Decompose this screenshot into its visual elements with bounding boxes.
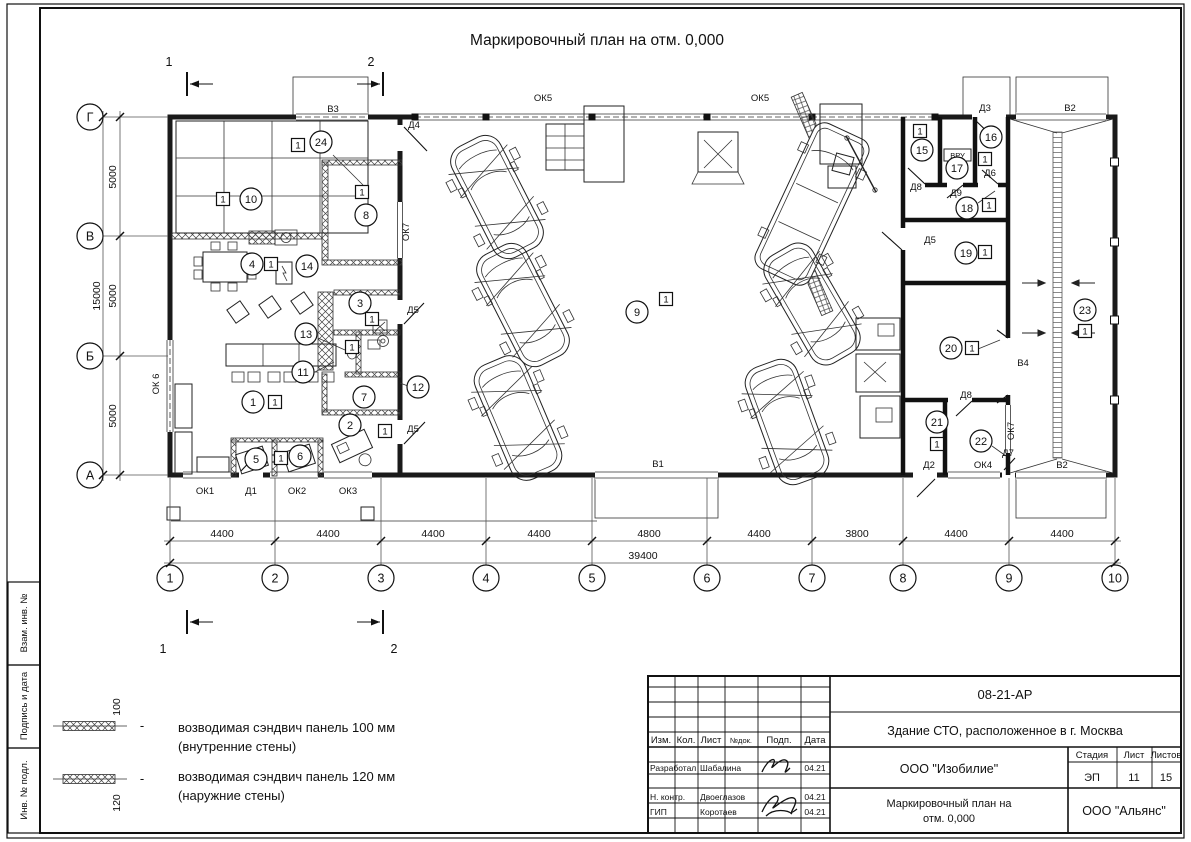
room-number: 7 [361, 392, 367, 404]
legend-dim-120: 120 [111, 794, 123, 812]
gate-v2-top [1016, 113, 1106, 122]
opening-label: ОК2 [288, 486, 306, 497]
unit-mark: 1 [917, 127, 922, 138]
opening-label: В4 [1017, 358, 1029, 369]
dim-value: 3800 [845, 528, 869, 540]
dim-value: 5000 [107, 404, 119, 428]
axis-label: Б [86, 350, 94, 364]
generated-annotations: 12345678910ГВБА4400440044004400480044003… [77, 55, 1128, 656]
plan-canvas: Взам. инв. № Подпись и дата Инв. № подл.… [0, 0, 1191, 842]
unit-mark: 1 [663, 295, 668, 306]
opening-label: Д7 [1002, 448, 1014, 459]
room-number: 24 [315, 137, 327, 149]
name-1: Двоеглазов [700, 792, 746, 802]
unit-mark: 1 [268, 260, 273, 271]
drive-bay [1010, 119, 1113, 473]
opening-label: Д8 [960, 390, 972, 401]
dim-value: 5000 [107, 284, 119, 308]
gate-v1 [595, 471, 718, 480]
company: ООО "Изобилие" [900, 762, 998, 776]
room-number: 13 [300, 329, 312, 341]
axis-label: 5 [589, 572, 596, 586]
title-block: Изм. Кол. Лист №док. Подп. Дата Разработ… [648, 676, 1181, 833]
room-number: 8 [363, 210, 369, 222]
opening-label: Д5 [924, 235, 936, 246]
opening-label: ОК5 [751, 93, 769, 104]
axis-label: 8 [900, 572, 907, 586]
col-list: Лист [701, 735, 722, 746]
drawing-title-line2: отм. 0,000 [923, 813, 975, 825]
unit-mark: 1 [982, 248, 987, 259]
opening-label: ОК 6 [151, 374, 162, 395]
unit-mark: 1 [272, 398, 277, 409]
cars [434, 89, 911, 494]
opening-label: ОК7 [401, 223, 412, 241]
legend-text-100-line2: (внутренние стены) [178, 739, 296, 754]
window-ok3 [324, 471, 372, 480]
opening-label: Д8 [910, 182, 922, 193]
car-2 [460, 232, 586, 378]
axis-label: А [86, 469, 95, 483]
legend-dash-0: - [140, 718, 144, 733]
window-ok6 [166, 340, 175, 432]
window-ok5-band [412, 113, 939, 122]
car-6 [729, 350, 845, 493]
unit-mark: 1 [220, 195, 225, 206]
legend-dash-1: - [140, 771, 144, 786]
room-number: 1 [250, 397, 256, 409]
dim-value: 4400 [527, 528, 551, 540]
room-number: 20 [945, 343, 957, 355]
room-number: 16 [985, 132, 997, 144]
dim-value: 4400 [1050, 528, 1074, 540]
legend-text-120-line2: (наружние стены) [178, 788, 285, 803]
room-number: 21 [931, 417, 943, 429]
dim-value: 4400 [944, 528, 968, 540]
legend-text-120-line1: возводимая сэндвич панель 120 мм [178, 769, 395, 784]
dim-total-left: 15000 [91, 281, 103, 310]
opening-label: Д5 [407, 424, 419, 435]
room-number: 10 [245, 194, 257, 206]
axis-label: 7 [809, 572, 816, 586]
opening-label: Д3 [979, 103, 991, 114]
opening-label: ОК5 [534, 93, 552, 104]
col-kol: Кол. [677, 735, 696, 746]
axis-label: Г [87, 111, 94, 125]
car-1 [434, 124, 560, 270]
section-mark: 2 [368, 55, 375, 69]
axis-label: 6 [704, 572, 711, 586]
opening-label: В3 [327, 104, 339, 115]
car-3 [458, 346, 578, 491]
opening-label: В2 [1064, 103, 1076, 114]
sheet-label: Лист [1124, 750, 1145, 761]
stage-label: Стадия [1076, 750, 1108, 761]
doc-code: 08-21-АР [978, 687, 1033, 702]
room-number: 23 [1079, 305, 1091, 317]
unit-mark: 1 [278, 454, 283, 465]
unit-mark: 1 [986, 201, 991, 212]
room-number: 11 [297, 367, 308, 379]
room-number: 14 [301, 261, 313, 273]
hall-dividing-wall [396, 117, 428, 475]
room-number: 2 [347, 420, 353, 432]
drawing-title-line1: Маркировочный план на [886, 798, 1012, 810]
opening-label: Д6 [984, 168, 996, 179]
gate-v2-bottom [1016, 471, 1106, 480]
dim-value: 4800 [637, 528, 661, 540]
dim-value: 4400 [210, 528, 234, 540]
axis-label: В [86, 230, 94, 244]
opening-label: ОК3 [339, 486, 357, 497]
name-0: Шабалина [700, 763, 741, 773]
room-number: 19 [960, 248, 972, 260]
door-d2 [913, 471, 937, 498]
opening-label: В2 [1056, 460, 1068, 471]
col-ndok: №док. [730, 736, 752, 745]
unit-mark: 1 [934, 440, 939, 451]
opening-label: Д9 [950, 188, 962, 199]
section-mark: 1 [160, 642, 167, 656]
date-2: 04.21 [804, 807, 826, 817]
unit-mark: 1 [982, 155, 987, 166]
room-number: 17 [951, 163, 963, 175]
name-2: Коротаев [700, 807, 737, 817]
org: ООО "Альянс" [1082, 804, 1166, 818]
left-block-partitions [172, 155, 1006, 476]
date-1: 04.21 [804, 792, 826, 802]
axis-label: 2 [272, 572, 279, 586]
opening-label: В1 [652, 459, 664, 470]
legend-dim-100: 100 [111, 698, 123, 716]
sheets-label: Листов [1151, 750, 1182, 761]
dim-value: 4400 [316, 528, 340, 540]
section-mark: 1 [166, 55, 173, 69]
room-number: 22 [975, 436, 987, 448]
room-number: 12 [412, 382, 424, 394]
axis-label: 3 [378, 572, 385, 586]
axis-label: 9 [1006, 572, 1013, 586]
col-izm: Изм. [651, 735, 671, 746]
room-number: 4 [249, 259, 255, 271]
opening-label: Д2 [923, 460, 935, 471]
role-0: Разработал [650, 763, 696, 773]
axis-label: 4 [483, 572, 490, 586]
room-number: 5 [253, 454, 259, 466]
section-mark: 2 [391, 642, 398, 656]
sheet-value: 11 [1128, 772, 1139, 784]
unit-mark: 1 [349, 343, 354, 354]
unit-mark: 1 [382, 427, 387, 438]
dim-total: 39400 [628, 550, 657, 562]
opening-label: ОК7 [1006, 422, 1017, 440]
sheets-value: 15 [1160, 772, 1172, 784]
room-number: 18 [961, 203, 973, 215]
opening-label: ОК1 [196, 486, 214, 497]
room-number: 15 [916, 145, 928, 157]
drawing-title: Маркировочный план на отм. 0,000 [470, 32, 724, 49]
drawing-sheet: Взам. инв. № Подпись и дата Инв. № подл.… [0, 0, 1191, 842]
opening-label: Д5 [407, 305, 419, 316]
room-number: 9 [634, 307, 640, 319]
date-0: 04.21 [804, 763, 826, 773]
unit-mark: 1 [369, 315, 374, 326]
axis-label: 1 [167, 572, 174, 586]
unit-mark: 1 [295, 141, 300, 152]
frame-label-1: Подпись и дата [19, 671, 30, 740]
dim-value: 4400 [747, 528, 771, 540]
window-ok4 [948, 471, 1000, 480]
van-4 [713, 89, 911, 319]
opening-label: Д4 [408, 120, 420, 131]
opening-label: Д1 [245, 486, 257, 497]
frame-label-2: Инв. № подл. [19, 760, 30, 819]
stage-value: ЭП [1084, 772, 1100, 784]
room-number: 3 [357, 298, 363, 310]
wall-legend: 100 - возводимая сэндвич панель 100 мм (… [53, 698, 395, 812]
unit-mark: 1 [969, 344, 974, 355]
axis-label: 10 [1108, 572, 1122, 586]
dim-value: 5000 [107, 165, 119, 189]
car-5 [747, 231, 877, 377]
opening-label: ОК4 [974, 460, 992, 471]
project-title: Здание СТО, расположенное в г. Москва [887, 724, 1123, 738]
frame-label-0: Взам. инв. № [19, 594, 30, 653]
dim-value: 4400 [421, 528, 445, 540]
role-1: Н. контр. [650, 792, 685, 802]
col-data: Дата [804, 735, 826, 746]
legend-text-100-line1: возводимая сэндвич панель 100 мм [178, 720, 395, 735]
unit-mark: 1 [1082, 327, 1087, 338]
role-2: ГИП [650, 807, 667, 817]
room-number: 6 [297, 451, 303, 463]
unit-mark: 1 [359, 188, 364, 199]
col-podp: Подп. [766, 735, 791, 746]
